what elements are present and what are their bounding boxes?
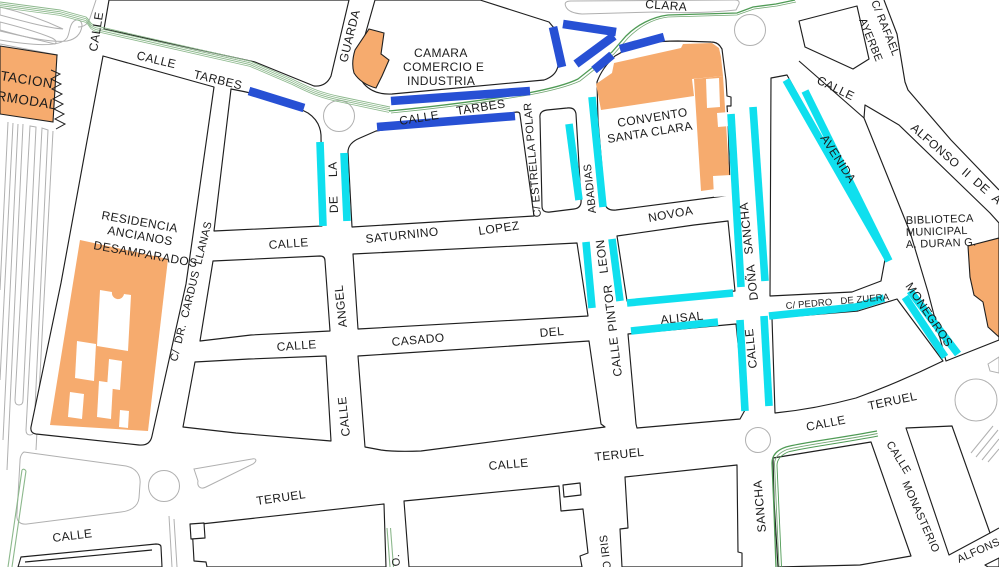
svg-text:A. DURAN G.: A. DURAN G. (906, 237, 977, 251)
svg-text:CAMARA: CAMARA (414, 46, 468, 60)
svg-text:CALLE: CALLE (268, 235, 309, 252)
svg-text:INDUSTRIA: INDUSTRIA (407, 74, 475, 88)
svg-text:DEL: DEL (539, 324, 565, 340)
svg-text:O.: O. (390, 554, 403, 567)
svg-text:COMERCIO E: COMERCIO E (403, 60, 484, 74)
svg-text:LA: LA (325, 161, 340, 177)
svg-text:CALLE: CALLE (276, 337, 317, 354)
svg-text:DE: DE (326, 195, 341, 213)
